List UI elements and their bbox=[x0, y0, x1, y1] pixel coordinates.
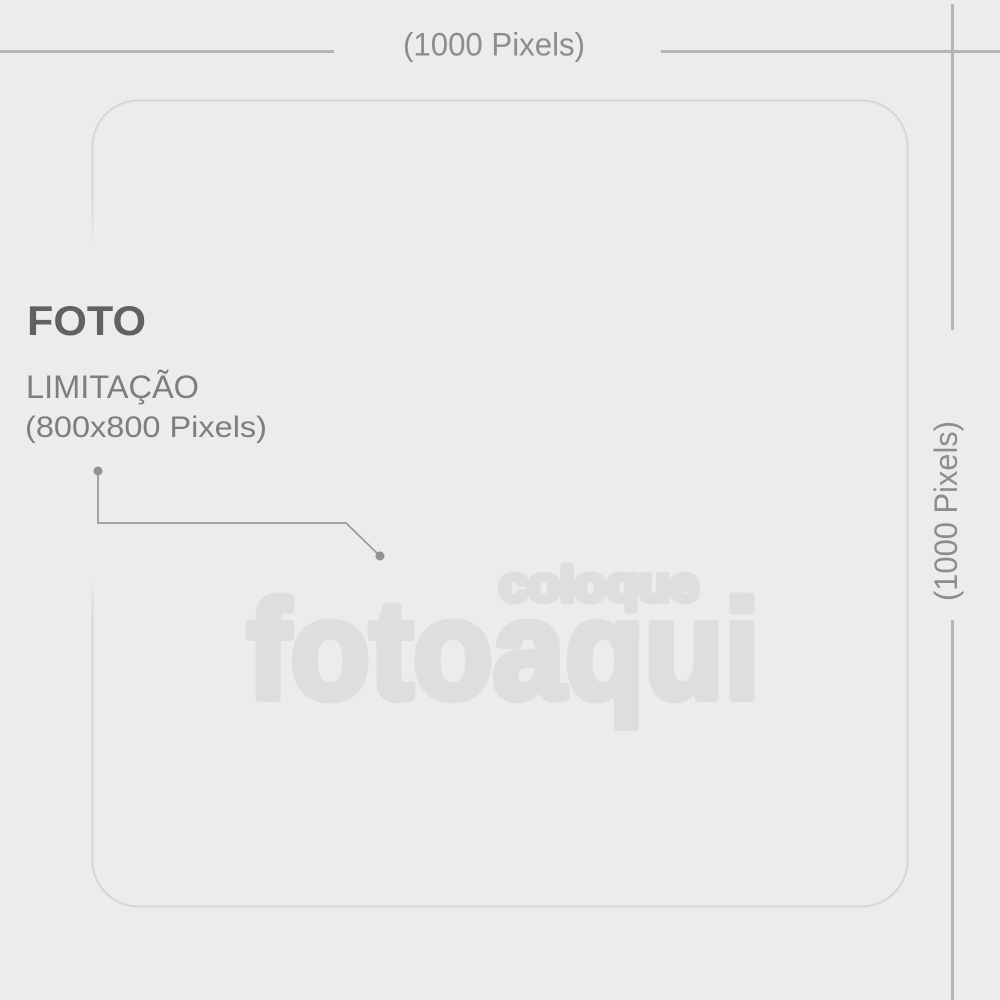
svg-text:fotoaqui: fotoaqui bbox=[247, 571, 760, 728]
svg-text:FOTO: FOTO bbox=[27, 297, 146, 344]
svg-text:(800x800 Pixels): (800x800 Pixels) bbox=[25, 411, 267, 444]
svg-text:(1000 Pixels): (1000 Pixels) bbox=[403, 27, 585, 63]
svg-text:(1000 Pixels): (1000 Pixels) bbox=[928, 421, 964, 601]
svg-text:LIMITAÇÃO: LIMITAÇÃO bbox=[26, 369, 199, 405]
